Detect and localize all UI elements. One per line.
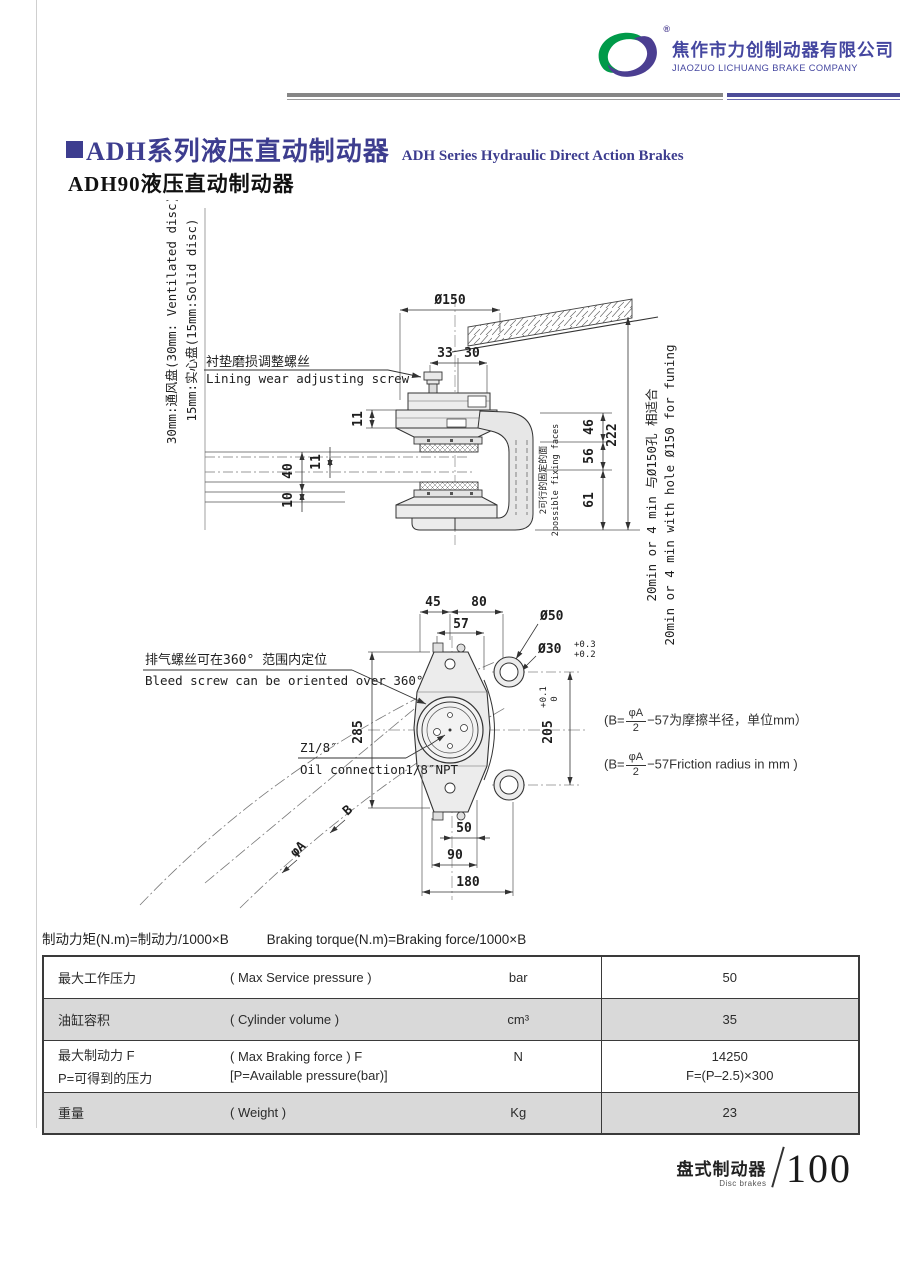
friction-text-zh: −57为摩擦半径，单位mm） [647,712,808,727]
bleed-note-en: Bleed screw can be oriented over 360° [145,673,423,688]
footer-category-en: Disc brakes [677,1179,767,1188]
dim-40: 40 [281,463,296,479]
row3-unit: N [436,1049,601,1064]
dim-dia30-tol-dn: +0.2 [574,650,596,660]
dim-205: 205 [541,720,556,743]
footer-slash-icon [771,1147,784,1188]
formula-en: Braking torque(N.m)=Braking force/1000×B [267,932,527,947]
row2-value: 35 [602,1012,859,1027]
dim-dia150: Ø150 [433,293,465,308]
friction-fraction: φA2 [626,708,646,734]
row3-en2: [P=Available pressure(bar)] [230,1068,436,1083]
dim-80: 80 [471,595,487,610]
front-view: B φA 45 80 57 [140,595,596,908]
adjust-note-zh: 衬垫磨损调整螺丝 [206,354,310,370]
series-title: ADH系列液压直动制动器 ADH Series Hydraulic Direct… [66,131,684,168]
row4-en: ( Weight ) [230,1105,436,1120]
dim-205-tol-up: +0.1 [539,686,549,708]
row3-en: ( Max Braking force ) F [230,1049,436,1064]
row1-unit: bar [436,970,601,985]
dim-57: 57 [453,617,469,632]
friction-fraction-en: φA2 [626,752,646,778]
header-rule-gray [287,93,723,100]
fixing-note-zh: 2可行的固定的面 [537,446,549,514]
series-title-zh: ADH系列液压直动制动器 [86,131,390,168]
fit-note-en: 20min or 4 min with hole Ø150 for funing [662,344,677,645]
row4-zh: 重量 [58,1103,226,1122]
dim-33: 33 [437,346,453,361]
disc-note-line2: 15mm:实心盘(15mm:Solid disc) [184,218,199,421]
row2-en: ( Cylinder volume ) [230,1012,436,1027]
footer-category: 盘式制动器 Disc brakes [677,1155,767,1188]
dim-11b: 11 [309,454,324,470]
company-name-zh: 焦作市力创制动器有限公司 [672,37,894,62]
table-row-cylinder-volume: 油缸容积 ( Cylinder volume ) cm³ 35 [43,998,859,1040]
title-square-icon [66,141,83,158]
row4-value: 23 [602,1105,859,1120]
spec-table: 最大工作压力 ( Max Service pressure ) bar 50 油… [42,955,860,1135]
friction-prefix-zh: (B= [604,712,625,727]
dim-dia50: Ø50 [539,609,564,624]
drawing-canvas: 30mm:通风盘(30mm: Ventilated disc) 15mm:实心盘… [0,200,900,920]
table-row-max-braking-force: 最大制动力 F P=可得到的压力 ( Max Braking force ) F… [43,1040,859,1092]
header-rule-purple [727,93,900,100]
dim-46: 46 [582,419,597,435]
footer-category-zh: 盘式制动器 [677,1155,767,1180]
fit-note-zh: 20min or 4 min 与Ø150孔 相适合 [644,388,659,602]
fixing-note-en: 2possible fixing faces [551,424,561,537]
dim-11a: 11 [351,411,366,427]
row1-en: ( Max Service pressure ) [230,970,436,985]
dim-205-tol-dn: 0 [550,696,560,701]
friction-prefix-en: (B= [604,756,625,771]
dim-56: 56 [582,448,597,464]
dim-dia30-tol-up: +0.3 [574,640,596,650]
page-footer: 盘式制动器 Disc brakes 100 [677,1146,853,1188]
model-title: ADH90液压直动制动器 [68,168,295,198]
row3-zh2: P=可得到的压力 [58,1068,226,1087]
dim-285: 285 [351,720,366,743]
row3-zh: 最大制动力 F [58,1045,226,1064]
bleed-note-zh: 排气螺丝可在360° 范围内定位 [145,652,327,668]
disc-note-line1: 30mm:通风盘(30mm: Ventilated disc) [164,200,179,444]
table-row-max-pressure: 最大工作压力 ( Max Service pressure ) bar 50 [43,956,859,998]
row4-unit: Kg [436,1105,601,1120]
dim-30: 30 [464,346,480,361]
dim-45: 45 [425,595,441,610]
dim-B: B [340,802,356,819]
company-logo: ® 焦作市力创制动器有限公司 JIAOZUO LICHUANG BRAKE CO… [592,26,864,84]
oil-note-en: Oil connection1/8″NPT [300,762,459,777]
page-number: 100 [786,1150,852,1188]
dim-222: 222 [605,423,620,446]
dim-phiA: φA [287,839,309,861]
row2-zh: 油缸容积 [58,1010,226,1029]
friction-note-zh: (B=φA2−57为摩擦半径，单位mm） [604,708,808,734]
top-view: 30mm:通风盘(30mm: Ventilated disc) 15mm:实心盘… [164,200,677,646]
company-name: 焦作市力创制动器有限公司 JIAOZUO LICHUANG BRAKE COMP… [672,37,894,73]
oil-note-zh: Z1/8″ [300,740,338,755]
friction-text-en: −57Friction radius in mm ) [647,756,798,771]
dim-61: 61 [582,492,597,508]
table-row-weight: 重量 ( Weight ) Kg 23 [43,1092,859,1134]
row3-value: 14250 [602,1049,859,1064]
formula-zh: 制动力矩(N.m)=制动力/1000×B [42,932,229,947]
row2-unit: cm³ [436,1012,601,1027]
row3-value2: F=(P–2.5)×300 [602,1068,859,1083]
series-title-en: ADH Series Hydraulic Direct Action Brake… [402,148,684,165]
catalog-page: ® 焦作市力创制动器有限公司 JIAOZUO LICHUANG BRAKE CO… [0,0,900,1273]
dim-10: 10 [281,492,296,508]
company-name-en: JIAOZUO LICHUANG BRAKE COMPANY [672,63,894,73]
row1-value: 50 [602,970,859,985]
dim-dia30: Ø30 [537,642,562,657]
dim-180: 180 [456,875,480,890]
adjust-note-en: Lining wear adjusting screw [206,371,410,386]
technical-drawing: 30mm:通风盘(30mm: Ventilated disc) 15mm:实心盘… [0,200,900,920]
friction-note-en: (B=φA2−57Friction radius in mm ) [604,752,798,778]
registered-mark: ® [663,24,670,34]
logo-swirl-icon: ® [592,26,666,84]
row1-zh: 最大工作压力 [58,968,226,987]
dim-90: 90 [447,848,463,863]
braking-torque-formula: 制动力矩(N.m)=制动力/1000×B Braking torque(N.m)… [42,928,560,948]
dim-50: 50 [456,821,472,836]
